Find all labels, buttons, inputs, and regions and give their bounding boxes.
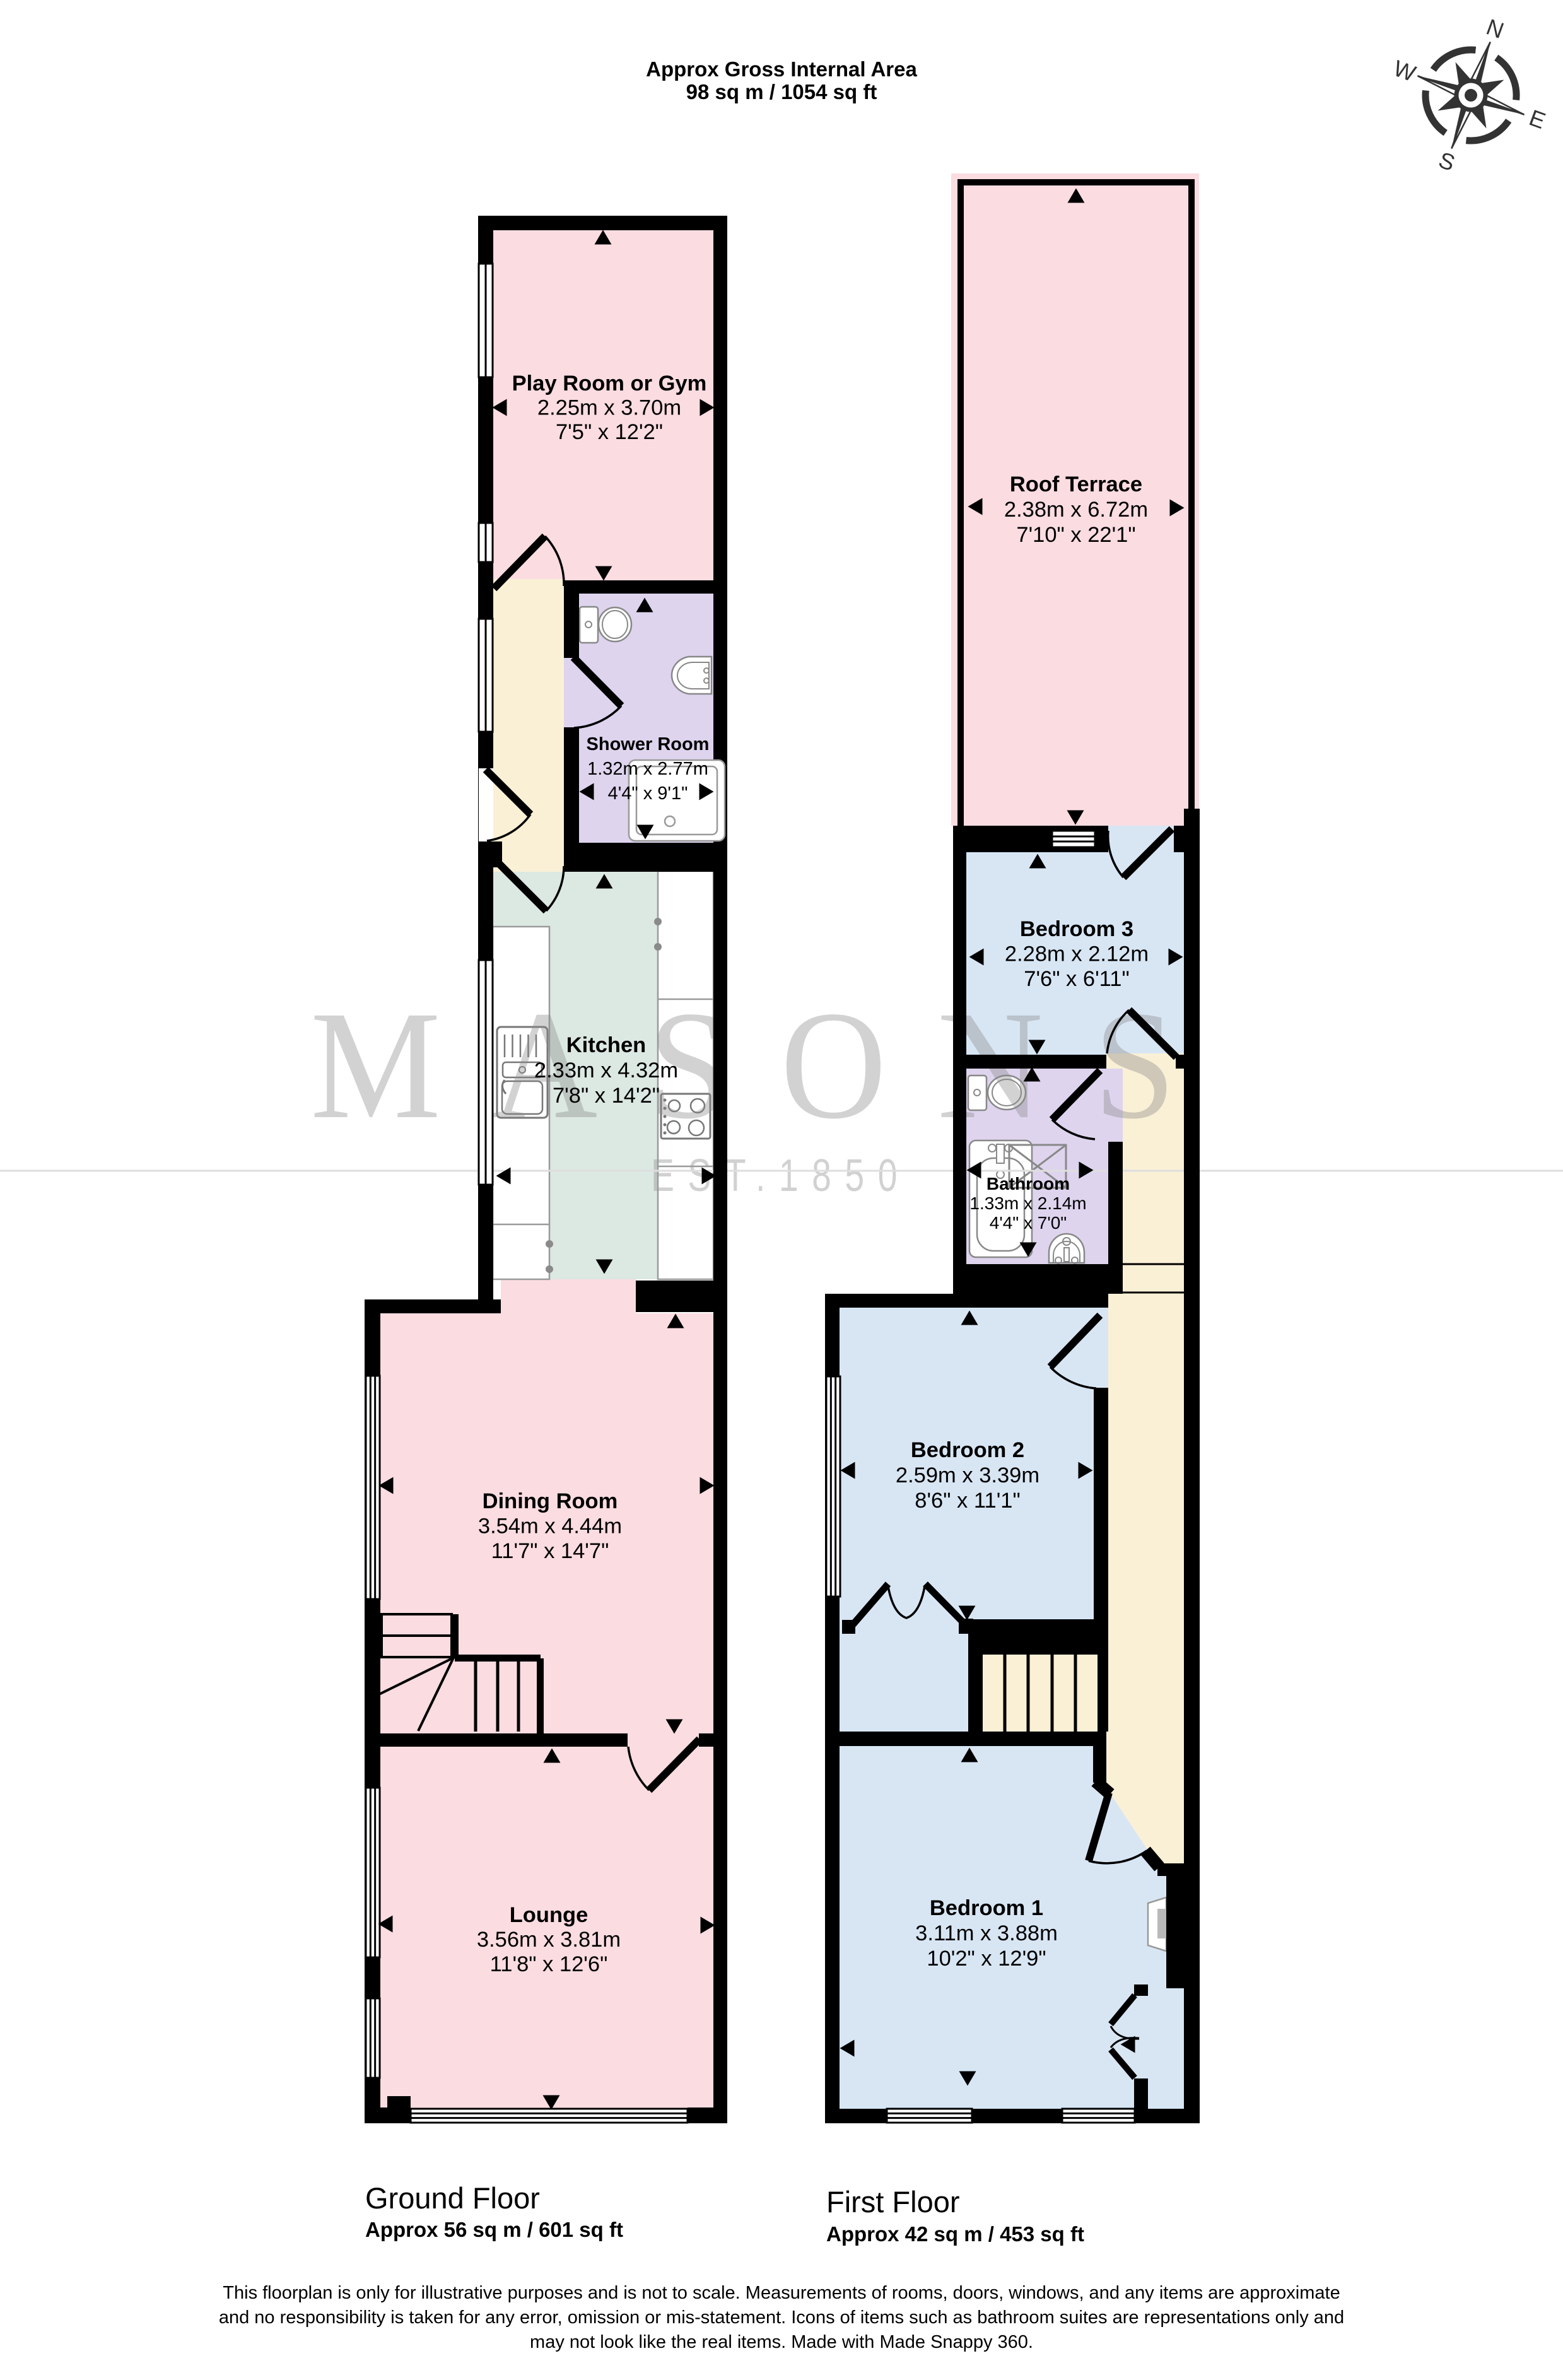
svg-text:3.56m x 3.81m: 3.56m x 3.81m <box>477 1928 621 1952</box>
svg-text:2.28m x 2.12m: 2.28m x 2.12m <box>1005 942 1149 966</box>
svg-text:Dining Room: Dining Room <box>483 1489 618 1513</box>
svg-text:8'6" x 11'1": 8'6" x 11'1" <box>915 1489 1020 1513</box>
svg-text:7'8" x 14'2": 7'8" x 14'2" <box>553 1084 660 1108</box>
svg-text:4'4" x 9'1": 4'4" x 9'1" <box>608 783 688 804</box>
svg-text:Bedroom 3: Bedroom 3 <box>1020 917 1133 941</box>
svg-text:Ground Floor: Ground Floor <box>365 2181 540 2215</box>
svg-text:10'2" x 12'9": 10'2" x 12'9" <box>927 1947 1046 1971</box>
svg-text:3.54m x 4.44m: 3.54m x 4.44m <box>478 1515 622 1539</box>
svg-text:Approx 56 sq m / 601 sq ft: Approx 56 sq m / 601 sq ft <box>365 2218 623 2241</box>
svg-text:11'7" x 14'7": 11'7" x 14'7" <box>491 1539 609 1563</box>
svg-text:and no responsibility is taken: and no responsibility is taken for any e… <box>219 2307 1344 2328</box>
svg-text:11'8" x 12'6": 11'8" x 12'6" <box>490 1952 608 1976</box>
svg-text:7'5" x 12'2": 7'5" x 12'2" <box>556 420 663 444</box>
svg-text:98 sq m / 1054 sq ft: 98 sq m / 1054 sq ft <box>686 80 877 103</box>
svg-text:2.25m x 3.70m: 2.25m x 3.70m <box>537 396 681 420</box>
svg-text:2.59m x 3.39m: 2.59m x 3.39m <box>896 1463 1039 1487</box>
svg-text:This floorplan is only for ill: This floorplan is only for illustrative … <box>223 2283 1340 2303</box>
svg-text:3.11m x 3.88m: 3.11m x 3.88m <box>915 1921 1058 1945</box>
svg-text:4'4" x 7'0": 4'4" x 7'0" <box>990 1213 1067 1233</box>
svg-text:Kitchen: Kitchen <box>566 1033 647 1057</box>
svg-text:may not look like the real ite: may not look like the real items. Made w… <box>530 2332 1033 2352</box>
svg-text:Approx 42 sq m / 453 sq ft: Approx 42 sq m / 453 sq ft <box>826 2222 1084 2246</box>
svg-text:Play Room or Gym: Play Room or Gym <box>512 372 707 396</box>
svg-text:EST.1850: EST.1850 <box>651 1151 911 1201</box>
svg-text:Lounge: Lounge <box>510 1903 588 1927</box>
svg-text:Shower Room: Shower Room <box>587 734 710 754</box>
svg-text:Bathroom: Bathroom <box>986 1174 1070 1193</box>
svg-text:2.38m x 6.72m: 2.38m x 6.72m <box>1004 498 1148 522</box>
svg-text:7'10" x 22'1": 7'10" x 22'1" <box>1016 523 1135 547</box>
svg-text:1.32m x 2.77m: 1.32m x 2.77m <box>587 759 708 779</box>
svg-text:7'6" x 6'11": 7'6" x 6'11" <box>1024 967 1129 991</box>
svg-text:1.33m x 2.14m: 1.33m x 2.14m <box>969 1193 1086 1213</box>
svg-text:Roof Terrace: Roof Terrace <box>1010 472 1142 496</box>
svg-text:Approx Gross Internal Area: Approx Gross Internal Area <box>646 57 917 81</box>
svg-text:2.33m x 4.32m: 2.33m x 4.32m <box>534 1058 678 1082</box>
svg-text:First Floor: First Floor <box>826 2185 960 2219</box>
svg-text:Bedroom 1: Bedroom 1 <box>930 1896 1043 1920</box>
svg-text:Bedroom 2: Bedroom 2 <box>911 1438 1024 1462</box>
